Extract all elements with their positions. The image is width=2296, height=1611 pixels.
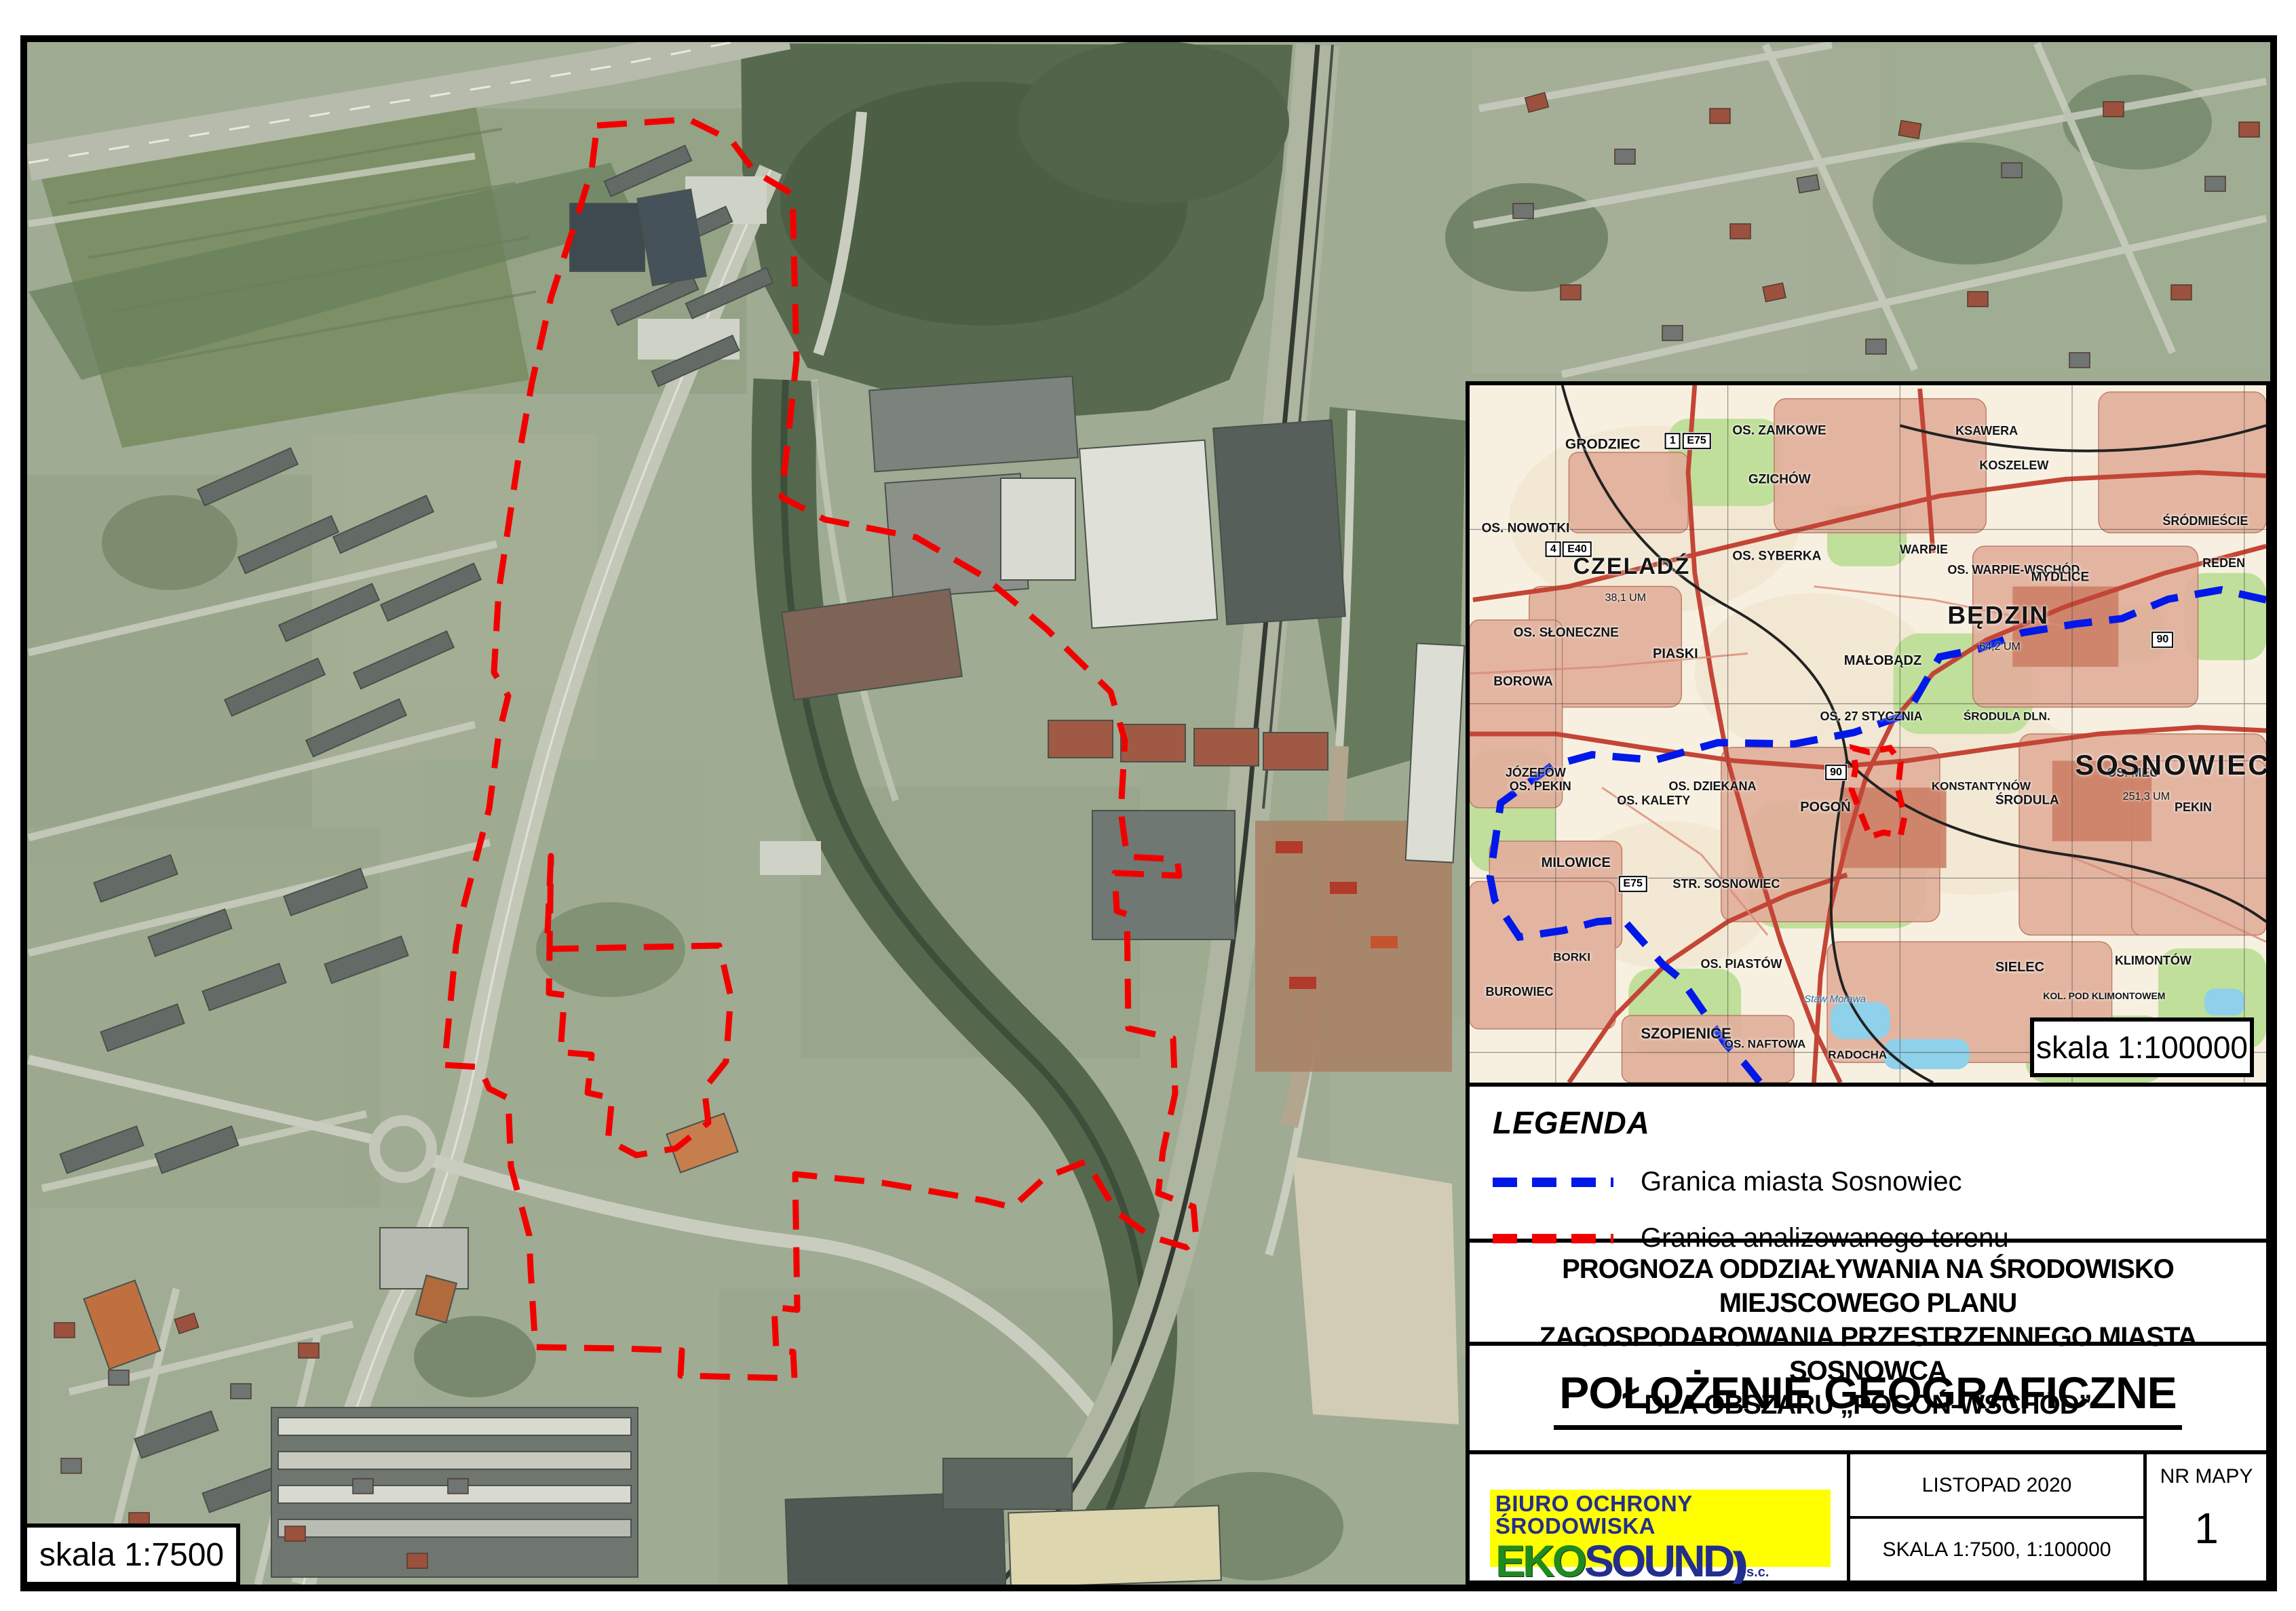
- scale-row: SKALA 1:7500, 1:100000: [1850, 1519, 2143, 1580]
- place-label: BUROWIEC: [1485, 986, 1553, 998]
- place-label: SIELEC: [1995, 960, 2044, 974]
- place-label: REDEN: [2202, 557, 2245, 569]
- main-scale-box: skala 1:7500: [23, 1523, 240, 1586]
- legend-title: LEGENDA: [1493, 1104, 2266, 1141]
- place-label: PEKIN: [2175, 801, 2212, 813]
- place-label: BĘDZIN: [1947, 603, 2049, 628]
- place-label: GRODZIEC: [1565, 438, 1641, 452]
- legend-item: Granica miasta Sosnowiec: [1493, 1167, 2266, 1197]
- roundabout: [375, 1121, 432, 1178]
- inset-scale-label: skala 1:100000: [2036, 1029, 2248, 1066]
- place-label: OS. PEKIN: [1510, 780, 1571, 792]
- place-label: OS. NAFTOWA: [1725, 1039, 1806, 1050]
- place-label: OS. PIASTÓW: [1700, 958, 1782, 970]
- date-row: LISTOPAD 2020: [1850, 1454, 2143, 1519]
- road-number-badge: E40: [1563, 541, 1591, 558]
- map-number-label: NR MAPY: [2160, 1465, 2253, 1488]
- inset-scale-box: skala 1:100000: [2030, 1017, 2254, 1077]
- place-label: CZELADŹ: [1573, 555, 1691, 578]
- project-title-line-1: PROGNOZA ODDZIAŁYWANIA NA ŚRODOWISKO MIE…: [1470, 1252, 2266, 1320]
- road-number-badge: 1: [1665, 433, 1681, 449]
- place-label: MILOWICE: [1542, 856, 1611, 870]
- legend-item-label: Granica miasta Sosnowiec: [1641, 1167, 1962, 1197]
- legend-dash-swatch: [1493, 1234, 1613, 1243]
- place-label: ŚRODULA DLN.: [1964, 711, 2050, 722]
- road-number-badge: E75: [1682, 433, 1710, 449]
- topo-map: [1470, 385, 2266, 1083]
- info-panel: GRODZIECOS. ZAMKOWEGZICHÓWOS. NOWOTKICZE…: [1466, 381, 2270, 1585]
- place-label: KOSZELEW: [1979, 459, 2048, 471]
- place-label: ŚRODULA: [1995, 794, 2059, 807]
- place-label: 251,3 UM: [2123, 792, 2170, 802]
- place-label: WARPIE: [1900, 543, 1948, 556]
- place-label: PIASKI: [1653, 647, 1698, 661]
- place-label: KOL. POD KLIMONTOWEM: [2043, 991, 2165, 1001]
- inset-map: GRODZIECOS. ZAMKOWEGZICHÓWOS. NOWOTKICZE…: [1470, 385, 2266, 1087]
- map-number-cell: NR MAPY 1: [2147, 1454, 2266, 1580]
- place-label: MYDLICE: [2031, 570, 2090, 583]
- road-number-badge: 90: [2151, 632, 2173, 648]
- place-label: MAŁOBĄDZ: [1844, 654, 1921, 667]
- legend-items: Granica miasta Sosnowiec Granica analizo…: [1493, 1167, 2266, 1254]
- place-label: SOSNOWIEC: [2075, 751, 2266, 779]
- place-label: RADOCHA: [1828, 1049, 1887, 1060]
- legend: LEGENDA Granica miasta Sosnowiec Granica…: [1470, 1087, 2266, 1243]
- place-label: BORKI: [1553, 951, 1590, 963]
- place-label: 64,2 UM: [1979, 642, 2020, 653]
- place-label: OS. DZIEKANA: [1669, 780, 1757, 792]
- place-label: SZOPIENICE: [1641, 1026, 1731, 1041]
- place-label: GZICHÓW: [1748, 473, 1811, 486]
- footer: BIURO OCHRONY ŚRODOWISKA EKOSOUND))s.c. …: [1470, 1454, 2266, 1580]
- place-label: 38,1 UM: [1605, 593, 1646, 604]
- place-label: OS. KALETY: [1617, 794, 1690, 807]
- road-number-badge: 4: [1546, 541, 1561, 558]
- road-number-badge: 90: [1825, 764, 1847, 781]
- logo-suffix: s.c.: [1746, 1565, 1769, 1580]
- project-title-block: PROGNOZA ODDZIAŁYWANIA NA ŚRODOWISKO MIE…: [1470, 1243, 2266, 1346]
- place-label: ŚRÓDMIEŚCIE: [2162, 515, 2248, 527]
- scales-label: SKALA 1:7500, 1:100000: [1883, 1538, 2111, 1561]
- ekosound-logo: BIURO OCHRONY ŚRODOWISKA EKOSOUND))s.c.: [1490, 1490, 1831, 1567]
- map-number-value: 1: [2194, 1503, 2219, 1553]
- company-name: BIURO OCHRONY ŚRODOWISKA: [1495, 1492, 1825, 1537]
- place-label: JÓZEFÓW: [1506, 766, 1566, 779]
- logo-cell: BIURO OCHRONY ŚRODOWISKA EKOSOUND))s.c.: [1470, 1454, 1850, 1580]
- place-label: OS. SŁONECZNE: [1514, 626, 1619, 639]
- place-label: OS. 27 STYCZNIA: [1820, 710, 1923, 722]
- place-label: OS. SYBERKA: [1732, 549, 1821, 562]
- logo-text-sound: SOUND: [1584, 1536, 1732, 1586]
- place-label: POGOŃ: [1800, 800, 1850, 814]
- place-label: OS. NOWOTKI: [1482, 522, 1570, 535]
- place-label: KSAWERA: [1955, 425, 2018, 437]
- map-title: POŁOŻENIE GEOGRAFICZNE: [1554, 1367, 2181, 1430]
- place-label: Staw Morawa: [1804, 994, 1866, 1004]
- legend-dash-swatch: [1493, 1178, 1613, 1187]
- place-label: STR. SOSNOWIEC: [1672, 878, 1780, 890]
- date-label: LISTOPAD 2020: [1922, 1474, 2072, 1497]
- road-number-badge: E75: [1618, 876, 1647, 892]
- logo-text-eko: EKO: [1495, 1536, 1584, 1586]
- logo-wordmark: EKOSOUND))s.c.: [1495, 1538, 1825, 1583]
- place-label: BOROWA: [1493, 675, 1553, 688]
- date-scale-cell: LISTOPAD 2020 SKALA 1:7500, 1:100000: [1850, 1454, 2147, 1580]
- place-label: KLIMONTÓW: [2115, 954, 2192, 967]
- place-label: KONSTANTYNÓW: [1932, 781, 2031, 792]
- place-label: OS. ZAMKOWE: [1732, 424, 1826, 437]
- speaker-arcs-icon: )): [1732, 1545, 1740, 1585]
- main-scale-label: skala 1:7500: [39, 1536, 224, 1574]
- map-sheet: skala 1:7500: [0, 0, 2296, 1611]
- map-title-block: POŁOŻENIE GEOGRAFICZNE: [1470, 1346, 2266, 1454]
